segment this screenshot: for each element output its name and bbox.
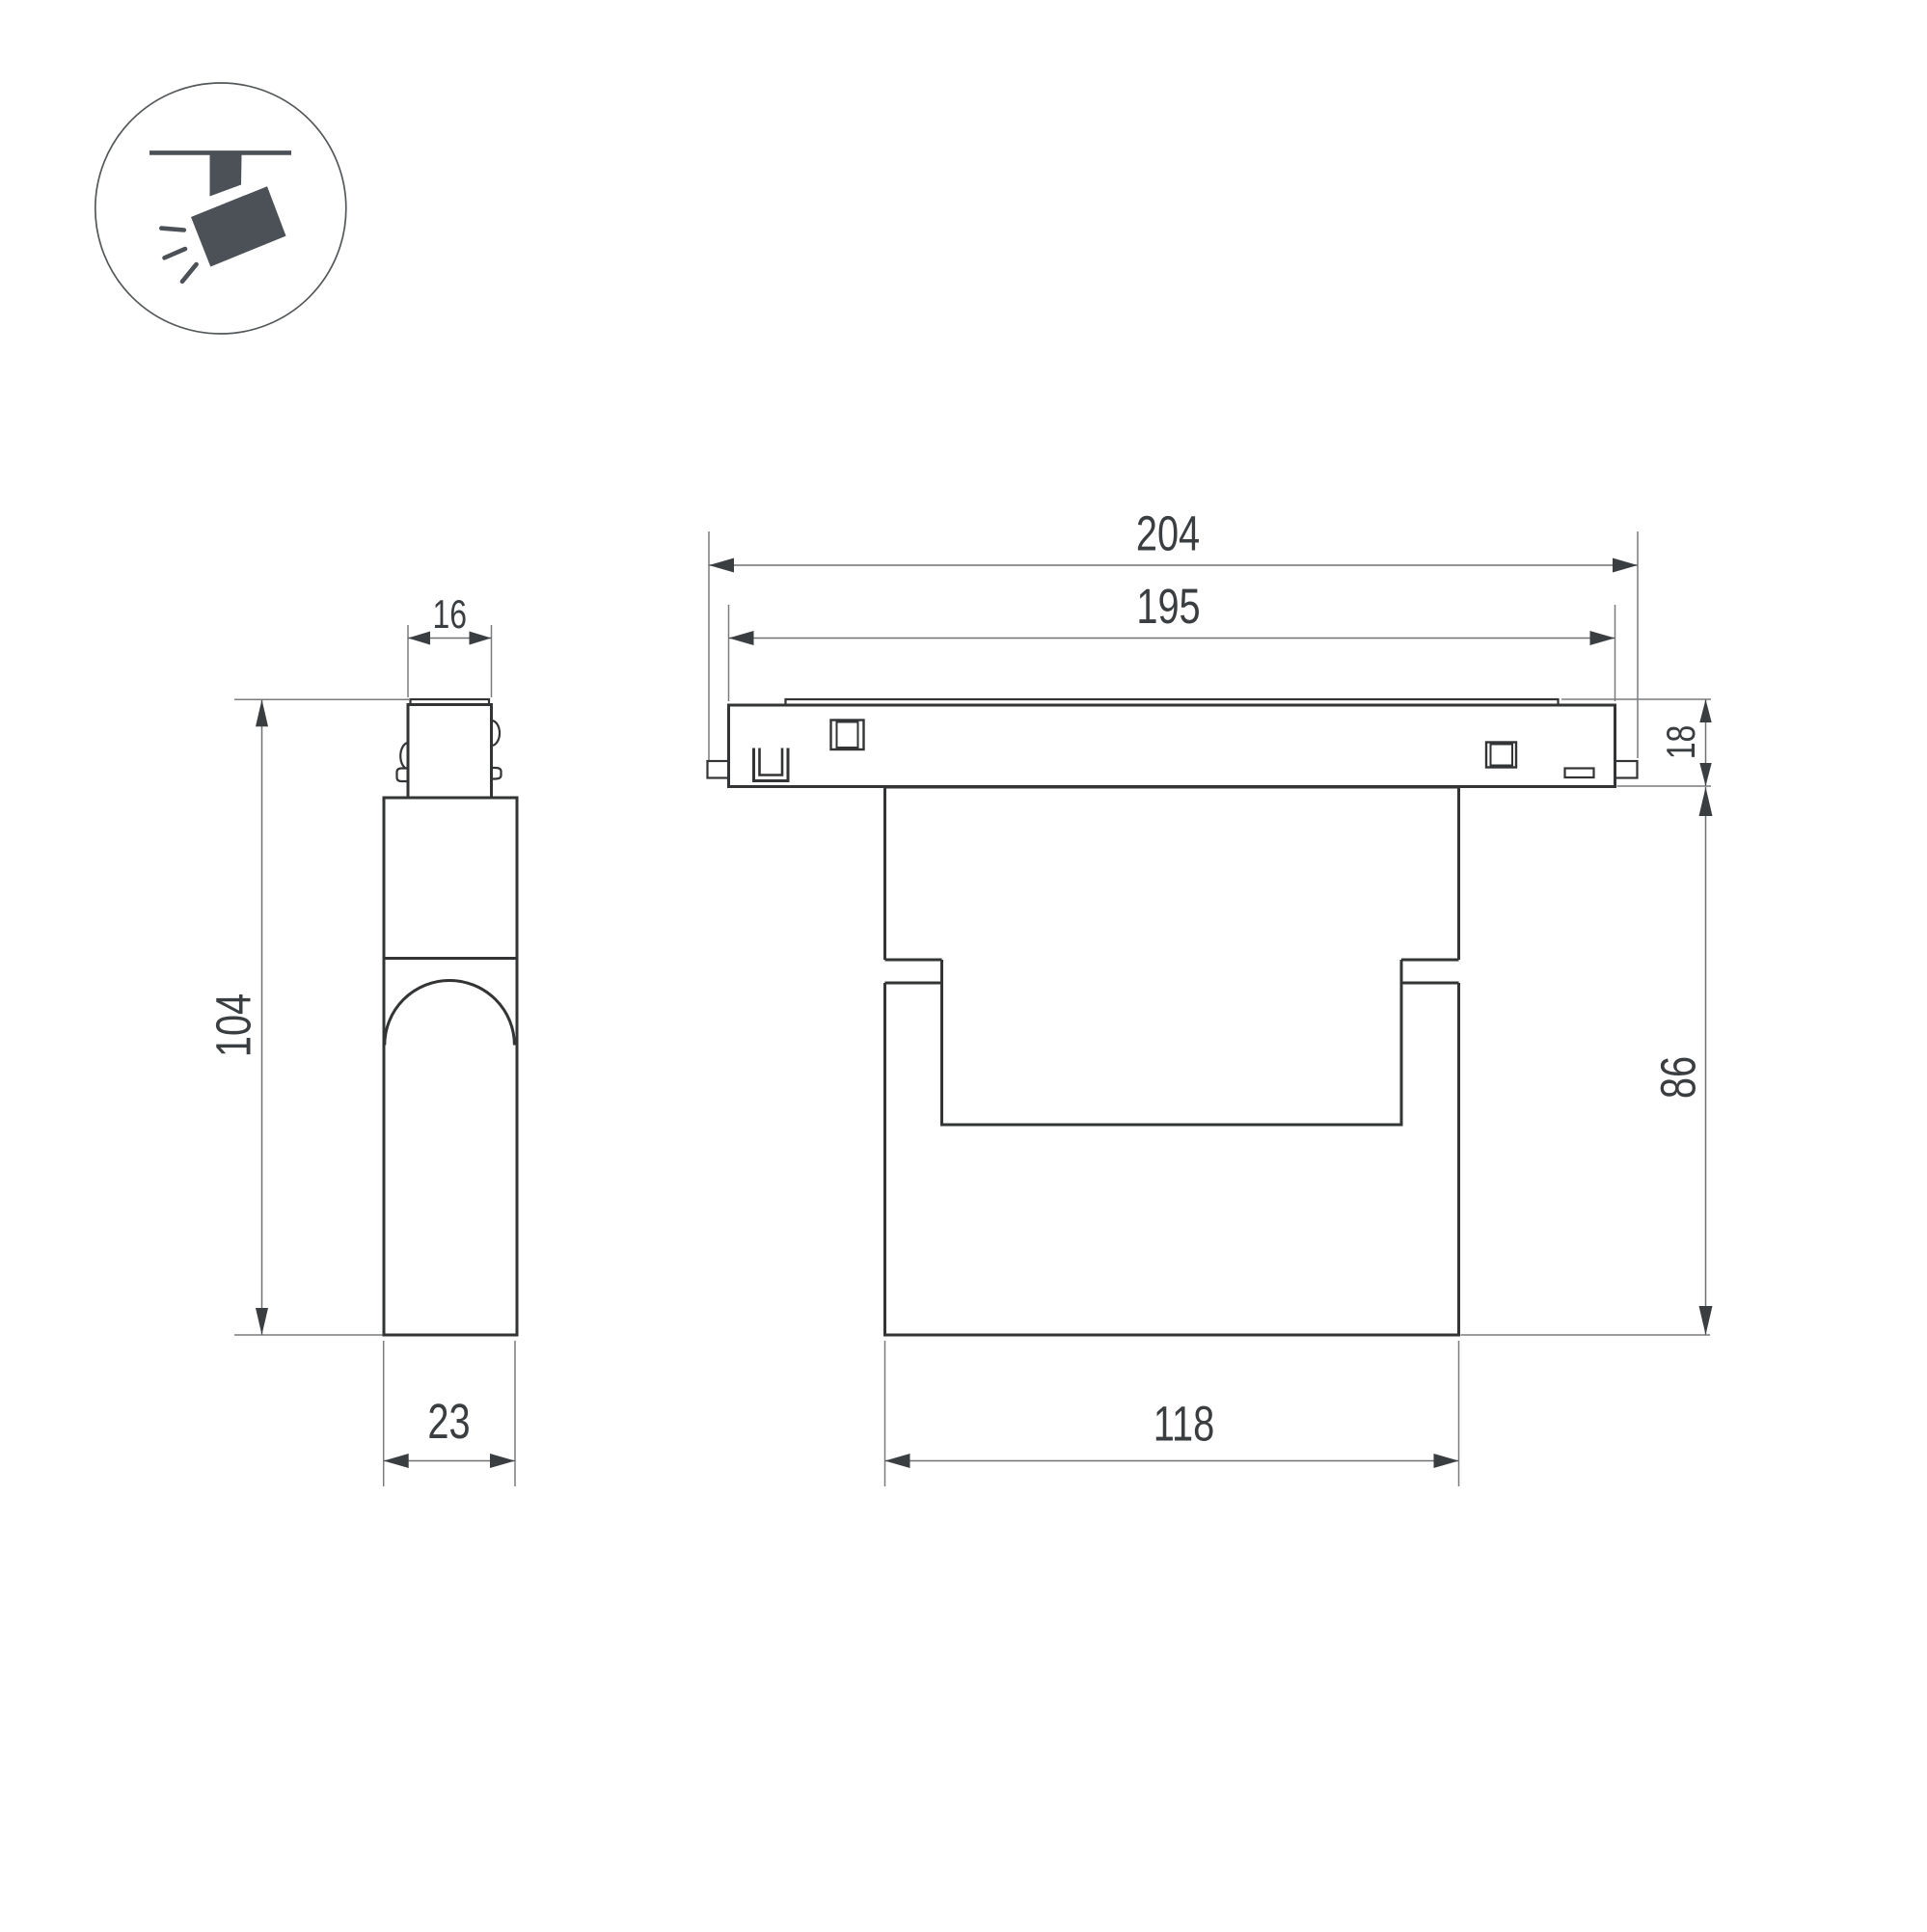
svg-text:204: 204 bbox=[1136, 506, 1200, 561]
svg-text:18: 18 bbox=[1658, 725, 1703, 760]
svg-text:23: 23 bbox=[427, 1394, 470, 1449]
svg-text:16: 16 bbox=[433, 591, 468, 637]
svg-text:195: 195 bbox=[1136, 579, 1200, 634]
svg-text:118: 118 bbox=[1153, 1397, 1214, 1452]
svg-text:86: 86 bbox=[1651, 1056, 1706, 1099]
svg-text:104: 104 bbox=[206, 993, 261, 1057]
